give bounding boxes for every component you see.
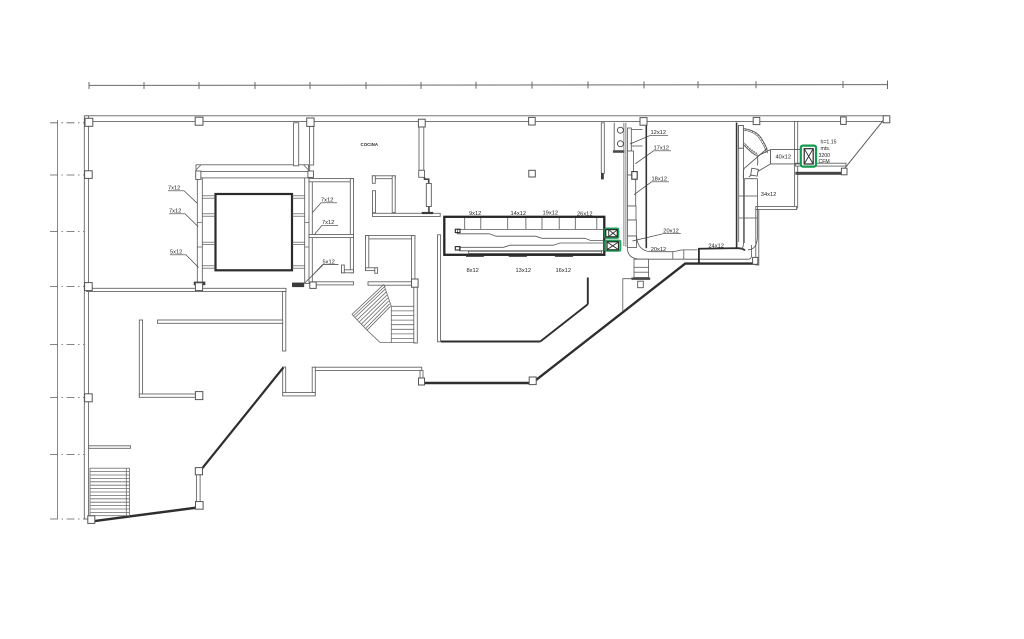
svg-text:26x12: 26x12 xyxy=(577,211,593,217)
svg-text:40x12: 40x12 xyxy=(776,155,792,161)
svg-text:mts.: mts. xyxy=(821,146,831,152)
svg-text:34x12: 34x12 xyxy=(761,192,777,198)
svg-text:h=1.15: h=1.15 xyxy=(821,140,837,146)
svg-text:13x12: 13x12 xyxy=(516,268,532,274)
svg-text:14x12: 14x12 xyxy=(511,211,527,217)
svg-text:9x12: 9x12 xyxy=(469,211,481,217)
svg-text:16x12: 16x12 xyxy=(556,268,572,274)
svg-text:20x12: 20x12 xyxy=(651,247,667,253)
svg-text:19x12: 19x12 xyxy=(543,211,559,217)
svg-text:COCINA: COCINA xyxy=(361,142,379,147)
svg-text:CFM: CFM xyxy=(819,159,830,165)
svg-text:8x12: 8x12 xyxy=(467,268,479,274)
